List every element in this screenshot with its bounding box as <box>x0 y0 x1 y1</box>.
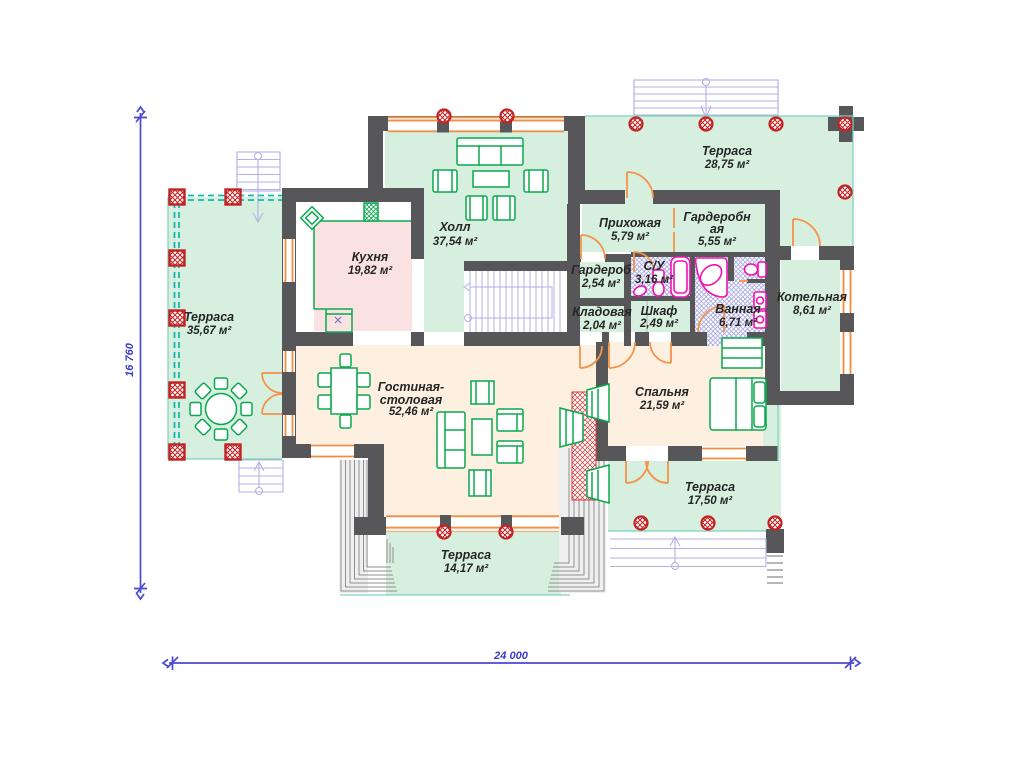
svg-text:Терраса: Терраса <box>184 310 234 324</box>
svg-text:17,50 м²: 17,50 м² <box>688 495 733 507</box>
svg-text:6,71 м²: 6,71 м² <box>719 317 758 329</box>
svg-text:Спальня: Спальня <box>635 385 690 399</box>
svg-text:14,17 м²: 14,17 м² <box>444 563 489 575</box>
svg-text:19,82 м²: 19,82 м² <box>348 265 393 277</box>
svg-text:Терраса: Терраса <box>702 144 752 158</box>
svg-text:Ванная: Ванная <box>715 302 761 316</box>
svg-text:Гардероб: Гардероб <box>571 263 632 277</box>
svg-text:Гостиная-: Гостиная- <box>378 380 444 394</box>
svg-text:Кладовая: Кладовая <box>572 305 632 319</box>
svg-text:28,75 м²: 28,75 м² <box>704 159 750 171</box>
svg-text:21,59 м²: 21,59 м² <box>639 400 685 412</box>
svg-text:Холл: Холл <box>438 220 470 234</box>
svg-text:37,54 м²: 37,54 м² <box>433 236 478 248</box>
svg-text:2,54 м²: 2,54 м² <box>581 278 621 290</box>
svg-text:ая: ая <box>710 222 725 236</box>
svg-text:Кухня: Кухня <box>352 250 389 264</box>
svg-text:52,46 м²: 52,46 м² <box>389 406 434 418</box>
svg-text:столовая: столовая <box>380 393 443 407</box>
svg-text:Терраса: Терраса <box>685 480 735 494</box>
svg-text:Котельная: Котельная <box>777 290 848 304</box>
svg-text:Шкаф: Шкаф <box>641 304 678 318</box>
svg-text:С/У: С/У <box>644 259 667 273</box>
svg-text:2,49 м²: 2,49 м² <box>639 318 679 330</box>
svg-text:5,79 м²: 5,79 м² <box>611 231 650 243</box>
svg-text:3,16 м²: 3,16 м² <box>635 274 674 286</box>
svg-text:8,61 м²: 8,61 м² <box>793 305 832 317</box>
svg-text:24 000: 24 000 <box>493 650 529 662</box>
svg-text:Терраса: Терраса <box>441 548 491 562</box>
svg-text:2,04 м²: 2,04 м² <box>582 320 622 332</box>
svg-text:16 760: 16 760 <box>124 342 136 377</box>
svg-text:5,55 м²: 5,55 м² <box>698 236 737 248</box>
svg-text:35,67 м²: 35,67 м² <box>187 325 232 337</box>
svg-text:Прихожая: Прихожая <box>599 216 662 230</box>
